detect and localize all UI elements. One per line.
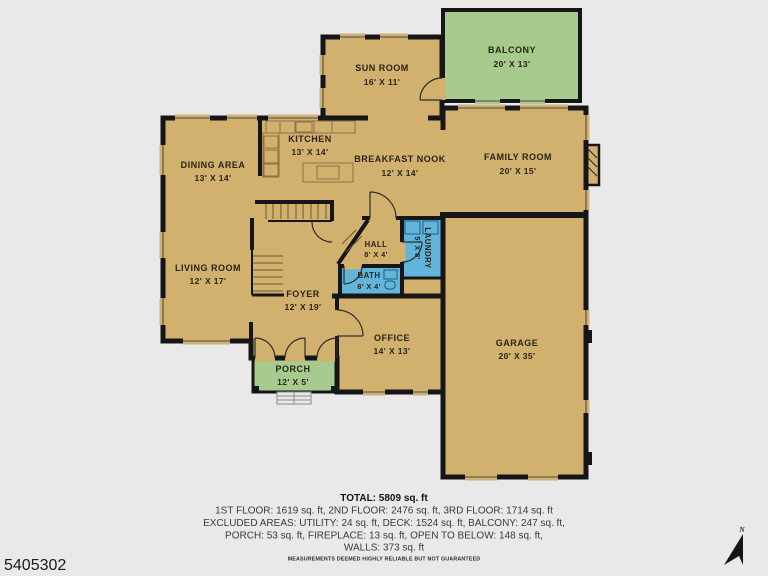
living-room-dims: 12' X 17' [190, 276, 227, 286]
porch-label: PORCH [275, 364, 310, 374]
laundry-label: LAUNDRY [423, 227, 432, 269]
hall-dims: 8' X 4' [364, 250, 388, 259]
excluded-areas-1: EXCLUDED AREAS: UTILITY: 24 sq. ft, DECK… [203, 518, 565, 529]
north-label: N [738, 526, 745, 534]
listing-id: 5405302 [4, 557, 66, 574]
sun-room-dims: 16' X 11' [364, 77, 400, 87]
family-room-label: FAMILY ROOM [484, 152, 552, 162]
breakfast-nook-label: BREAKFAST NOOK [354, 154, 446, 164]
porch-steps [277, 392, 311, 404]
laundry-dims: 5' X 8' [413, 236, 422, 260]
excluded-areas-2: PORCH: 53 sq. ft, FIREPLACE: 13 sq. ft, … [225, 531, 543, 542]
foyer-dims: 12' X 19' [285, 302, 322, 312]
breakfast-nook-dims: 12' X 14' [382, 168, 419, 178]
foyer-label: FOYER [286, 289, 320, 299]
office-dims: 14' X 13' [374, 346, 411, 356]
family-room-dims: 20' X 15' [500, 166, 537, 176]
garage-dims: 20' X 35' [499, 351, 536, 361]
dining-area-dims: 13' X 14' [195, 173, 232, 183]
balcony-area [443, 10, 580, 101]
porch-dims: 12' X 5' [277, 377, 309, 387]
bath-label: BATH [357, 271, 380, 280]
kitchen-label: KITCHEN [288, 134, 332, 144]
balcony-dims: 20' X 13' [494, 59, 531, 69]
total-area: TOTAL: 5809 sq. ft [340, 493, 428, 504]
office-label: OFFICE [374, 333, 410, 343]
floor-plan-page: SUN ROOM 16' X 11' BALCONY 20' X 13' KIT… [0, 0, 768, 576]
bath-dims: 8' X 4' [357, 282, 381, 291]
garage-label: GARAGE [496, 338, 539, 348]
living-room-label: LIVING ROOM [175, 263, 241, 273]
floor-plan-canvas: SUN ROOM 16' X 11' BALCONY 20' X 13' KIT… [0, 0, 768, 576]
hall-label: HALL [365, 240, 388, 249]
disclaimer: MEASUREMENTS DEEMED HIGHLY RELIABLE BUT … [288, 557, 481, 563]
balcony-label: BALCONY [488, 45, 536, 55]
kitchen-dims: 13' X 14' [292, 147, 329, 157]
dining-area-label: DINING AREA [181, 160, 246, 170]
floor-areas: 1ST FLOOR: 1619 sq. ft, 2ND FLOOR: 2476 … [215, 506, 553, 517]
excluded-areas-3: WALLS: 373 sq. ft [344, 543, 424, 554]
sun-room-label: SUN ROOM [355, 63, 409, 73]
